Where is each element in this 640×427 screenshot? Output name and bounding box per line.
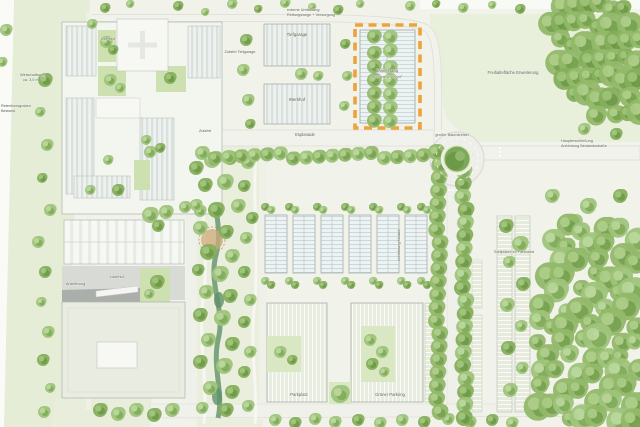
roof-wing-nw	[66, 26, 96, 76]
label-erweiterung-1: Erweiterung	[376, 68, 399, 73]
label-gruener-parkring: Grüner Parkring	[375, 392, 405, 397]
label-retention-1: Retentionsgraben	[1, 104, 31, 108]
south-complex	[62, 220, 185, 398]
roof-link	[96, 98, 140, 118]
main-road-east	[482, 146, 640, 160]
south-avenue-road	[447, 184, 461, 408]
label-parkplatz: Parkplatz	[290, 392, 307, 397]
pond-middle	[214, 292, 224, 308]
label-umfahrung-module: Umfahrung Module	[397, 229, 401, 261]
tiefgarage-building	[264, 24, 330, 66]
hedge-strip-2	[472, 315, 482, 412]
label-erweiterung-2: BGF ca. 5.000 m²	[372, 75, 403, 79]
skylight	[97, 342, 137, 368]
site-plan-drawing: externe Umfahrung Rettungswege + Versorg…	[0, 0, 640, 427]
werkhof-building	[264, 84, 330, 124]
main-complex	[62, 19, 222, 214]
label-anlieferung: Anlieferung	[66, 282, 85, 286]
label-zufahrt: Zufahrt	[199, 129, 212, 133]
courtyard-4	[134, 160, 150, 190]
label-kreisel: großer Baumkreisel	[435, 133, 468, 137]
label-anbindung-1: Haupterschließung	[561, 139, 593, 143]
tree	[418, 416, 431, 427]
tree	[329, 416, 342, 427]
label-innenhof: Innenhof	[101, 37, 117, 41]
label-retention-2: Bestand	[1, 109, 15, 113]
label-esplanade: Esplanade	[295, 132, 315, 137]
label-freihalteflaeche: Freihaltefläche Erweiterung	[488, 70, 540, 75]
label-ring-road-1: externe Umfahrung	[287, 8, 320, 12]
label-anbindung-2: Anbindung Bestandsstraße	[561, 144, 607, 148]
roof-wing-ne	[188, 26, 220, 78]
label-tiefgarage: Tiefgarage	[287, 32, 308, 37]
label-wirtschaftsweg-2: ca. 3,0 m	[23, 78, 39, 82]
label-wirtschaftsweg-1: Wirtschaftsweg	[20, 73, 46, 77]
label-ladehof: Ladehof	[110, 275, 125, 279]
site-plan-page: externe Umfahrung Rettungswege + Versorg…	[0, 0, 640, 427]
label-parkband: Stellplätze im Parkband	[494, 250, 534, 254]
label-zufahrt-tiefgarage: Zufahrt Tiefgarage	[224, 50, 255, 54]
label-werkhof: Werkhof	[289, 97, 306, 102]
label-ring-road-2: Rettungswege + Versorgung	[287, 13, 335, 17]
